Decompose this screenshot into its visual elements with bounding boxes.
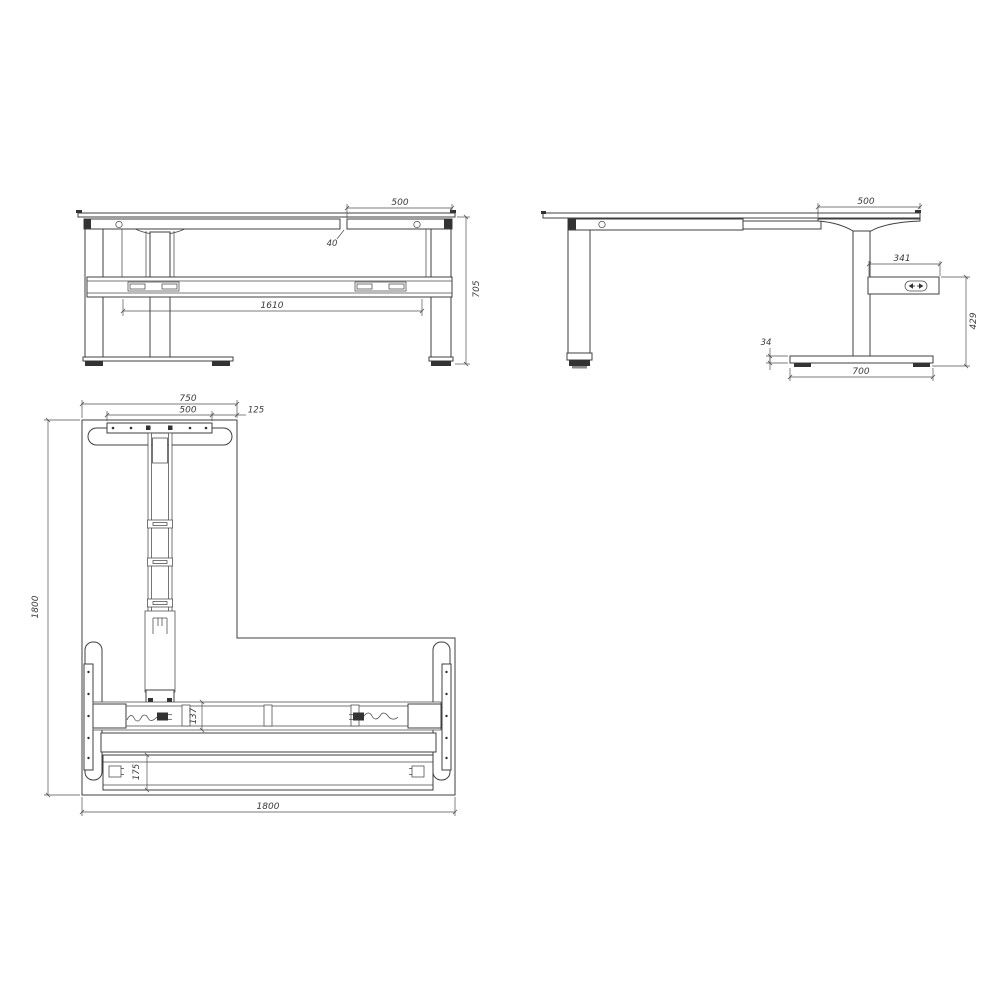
motor-box-right [408, 704, 441, 728]
dim-label: 1800 [257, 802, 280, 812]
side-tabletop [543, 213, 920, 218]
foot-glide-pad [212, 361, 230, 366]
dim-label: 1610 [261, 301, 284, 311]
side-frame-rail [568, 219, 743, 230]
power-cable [127, 715, 157, 721]
dim-label: 125 [248, 406, 264, 416]
plan-dim-plate-width: 500 [107, 406, 212, 422]
dim-label: 500 [391, 198, 408, 208]
plan-back-beam [101, 733, 436, 752]
technical-drawing: 500 40 1610 705 [0, 0, 1000, 1000]
front-dim-height: 705 [455, 217, 482, 364]
foot-glide-pad [431, 361, 451, 366]
dim-label: 40 [327, 239, 338, 249]
front-beam-handle-left [128, 282, 179, 291]
plan-dim-depth: 1800 [31, 420, 80, 795]
front-tabletop [78, 213, 455, 217]
front-dim-gap: 40 [327, 230, 344, 249]
side-dim-foot-height: 34 [761, 338, 788, 370]
drawing-canvas: 500 40 1610 705 [0, 0, 1000, 1000]
plan-rear-mounting-plate [107, 423, 212, 433]
screw-hole-icon [116, 221, 122, 227]
front-beam-handle-right [355, 282, 406, 291]
front-right-foot-cap [429, 357, 453, 361]
dim-label: 500 [857, 197, 874, 207]
side-tabletop-left-cap [541, 211, 546, 214]
dim-label: 750 [179, 394, 196, 404]
dim-label: 341 [893, 254, 910, 264]
side-dim-controller-offset: 341 [869, 254, 940, 276]
front-rear-foot-bar [83, 357, 233, 361]
dim-label: 137 [189, 707, 199, 724]
front-tabletop-right-cap [450, 210, 456, 213]
plan-dim-return-width: 750 [82, 394, 237, 418]
side-bracket-left [568, 219, 576, 230]
power-plug-icon [157, 713, 172, 721]
front-frame-rail-right [347, 219, 452, 229]
foot-glide-pad [85, 361, 103, 366]
screw-hole-icon [414, 221, 420, 227]
side-frame-rail-inner [743, 221, 821, 229]
column-cross-brace [148, 520, 173, 528]
front-view: 500 40 1610 705 [76, 198, 482, 366]
foot-glide-pad [913, 363, 930, 367]
plan-cable-tray [103, 755, 433, 790]
side-view: 500 341 429 34 700 [541, 197, 979, 381]
side-left-leg [568, 230, 590, 353]
dim-label: 700 [852, 367, 869, 377]
dim-label: 500 [179, 406, 196, 416]
front-bracket-right [444, 219, 452, 229]
side-dim-foot-length: 700 [790, 367, 933, 381]
column-cross-brace [148, 599, 173, 607]
front-bracket-left [84, 219, 91, 229]
column-lower-section [145, 611, 175, 692]
plan-lift-column [145, 433, 175, 703]
power-cable [364, 713, 398, 719]
plan-dim-width: 1800 [82, 797, 455, 816]
screw-hole-icon [599, 221, 605, 227]
plan-view: 137 175 750 [31, 394, 455, 816]
foot-glide-pad [569, 360, 590, 366]
beam-divider [264, 705, 272, 726]
control-box [868, 277, 939, 294]
front-tabletop-left-cap [76, 210, 82, 213]
plan-dim-edge-offset: 125 [212, 406, 264, 416]
dim-label: 429 [969, 312, 979, 329]
side-top-support-bracket [818, 219, 920, 231]
foot-glide-pad [794, 363, 811, 367]
dim-label: 34 [761, 338, 772, 348]
column-cross-brace [148, 558, 173, 566]
side-tabletop-right-cap [915, 210, 921, 213]
motor-box-left [93, 704, 126, 728]
dim-label: 175 [132, 764, 142, 780]
side-left-foot-cap [567, 353, 592, 360]
dim-label: 705 [472, 280, 482, 297]
side-foot [790, 356, 933, 363]
side-lift-column [853, 231, 870, 357]
plan-crossbeam [93, 702, 441, 730]
dim-label: 1800 [31, 595, 41, 618]
